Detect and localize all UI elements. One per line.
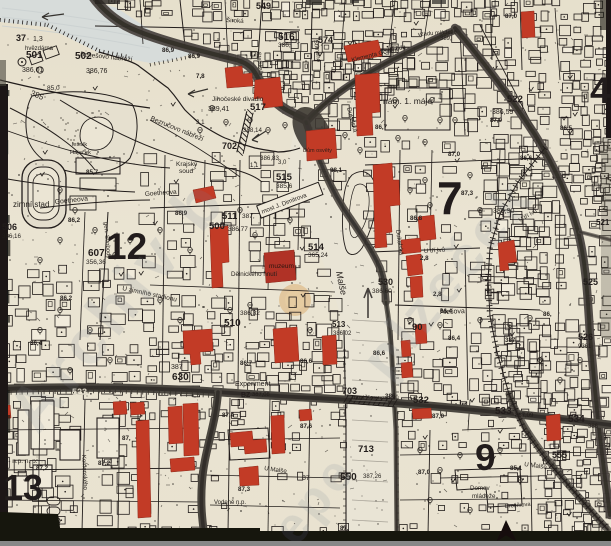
- svg-text:389,: 389,: [440, 36, 452, 42]
- svg-text:530: 530: [378, 277, 393, 287]
- svg-text:86,4: 86,4: [448, 335, 461, 342]
- svg-text:387: 387: [505, 337, 516, 344]
- svg-text:87,0: 87,0: [418, 469, 431, 476]
- svg-text:lesník: lesník: [72, 142, 87, 148]
- svg-text:387,08: 387,08: [252, 392, 270, 398]
- svg-text:87,0: 87,0: [490, 117, 503, 124]
- svg-text:Vodeně n.p.: Vodeně n.p.: [214, 500, 246, 506]
- svg-text:702: 702: [222, 141, 237, 151]
- svg-text:86,5: 86,5: [560, 125, 573, 132]
- svg-text:Domov: Domov: [470, 485, 491, 492]
- svg-text:517: 517: [250, 102, 266, 113]
- svg-text:386,02: 386,02: [333, 331, 352, 337]
- svg-text:630: 630: [172, 372, 189, 383]
- svg-text:713: 713: [358, 444, 374, 455]
- svg-text:574: 574: [318, 35, 333, 45]
- svg-text:522: 522: [507, 94, 523, 105]
- svg-text:515: 515: [276, 172, 293, 183]
- svg-text:1,1: 1,1: [250, 163, 259, 169]
- svg-text:386,01: 386,01: [22, 67, 44, 74]
- svg-text:86,2: 86,2: [60, 295, 73, 302]
- svg-text:387: 387: [171, 364, 183, 371]
- svg-text:386: 386: [588, 424, 599, 430]
- svg-text:87,0: 87,0: [448, 151, 461, 158]
- svg-text:87,0: 87,0: [505, 13, 518, 20]
- svg-text:7,8: 7,8: [196, 73, 205, 80]
- svg-text:521: 521: [596, 218, 610, 227]
- svg-text:85,7: 85,7: [86, 169, 99, 176]
- svg-text:365,24: 365,24: [308, 252, 328, 259]
- svg-text:389,41: 389,41: [208, 106, 230, 113]
- svg-text:549: 549: [256, 1, 271, 11]
- svg-text:506: 506: [2, 222, 17, 232]
- svg-text:386,: 386,: [278, 42, 291, 49]
- svg-text:Experiment: Experiment: [235, 381, 270, 388]
- svg-text:86,7: 86,7: [375, 124, 388, 131]
- svg-text:Dělnického hnutí: Dělnického hnutí: [231, 271, 277, 278]
- svg-text:386,76: 386,76: [86, 68, 108, 75]
- svg-text:mládeže: mládeže: [472, 493, 496, 500]
- svg-text:Široká: Široká: [226, 17, 244, 25]
- svg-text:88,1: 88,1: [330, 167, 343, 174]
- svg-text:87,3: 87,3: [238, 486, 251, 493]
- svg-text:386,16: 386,16: [2, 233, 21, 240]
- svg-text:zimní stad: zimní stad: [13, 200, 49, 209]
- svg-text:386,59: 386,59: [492, 109, 514, 116]
- svg-text:9361: 9361: [578, 344, 592, 350]
- svg-text:510: 510: [224, 318, 241, 329]
- svg-text:most Kosmonautů: most Kosmonautů: [352, 394, 399, 401]
- svg-text:86,9: 86,9: [162, 47, 175, 54]
- svg-text:3,0: 3,0: [278, 160, 287, 166]
- svg-text:86,8: 86,8: [410, 215, 423, 222]
- svg-text:525: 525: [583, 277, 598, 287]
- svg-text:86,2: 86,2: [68, 217, 81, 224]
- svg-text:13: 13: [3, 467, 43, 508]
- svg-text:387,09: 387,09: [515, 413, 534, 419]
- svg-text:385,6: 385,6: [276, 183, 293, 190]
- svg-text:87,2: 87,2: [98, 460, 111, 467]
- svg-text:Dům osvěty: Dům osvěty: [303, 147, 332, 154]
- svg-text:387,: 387,: [242, 213, 255, 220]
- svg-text:9: 9: [475, 437, 496, 478]
- svg-text:3,1: 3,1: [196, 119, 205, 126]
- svg-text:86,6: 86,6: [300, 358, 313, 365]
- svg-text:1,3: 1,3: [33, 36, 43, 43]
- svg-text:85,0: 85,0: [47, 85, 60, 92]
- svg-text:513: 513: [332, 320, 346, 329]
- svg-text:BZ: BZ: [241, 392, 251, 399]
- svg-text:hvězdárna: hvězdárna: [25, 46, 54, 52]
- svg-text:532: 532: [413, 395, 429, 406]
- svg-text:87,2: 87,2: [36, 465, 49, 472]
- svg-text:nám. 1. máje: nám. 1. máje: [383, 96, 432, 106]
- svg-text:86,7: 86,7: [240, 360, 253, 367]
- svg-text:86,6: 86,6: [520, 155, 533, 162]
- svg-text:388,14: 388,14: [243, 127, 262, 134]
- svg-text:87,4: 87,4: [222, 412, 235, 419]
- svg-text:4: 4: [590, 70, 611, 111]
- svg-text:607: 607: [88, 248, 105, 259]
- svg-text:37: 37: [16, 33, 26, 43]
- svg-text:muzeum: muzeum: [269, 263, 294, 270]
- svg-text:386,83: 386,83: [260, 155, 279, 162]
- svg-text:85,1: 85,1: [510, 465, 523, 472]
- svg-text:534: 534: [568, 414, 585, 425]
- svg-text:555: 555: [552, 450, 567, 460]
- svg-text:526: 526: [578, 332, 593, 342]
- svg-text:i - n.p. n. p.: i - n.p. n. p.: [5, 458, 38, 465]
- svg-text:87,3: 87,3: [461, 190, 474, 197]
- svg-text:87,: 87,: [340, 525, 349, 532]
- svg-text:Háječek: Háječek: [70, 150, 91, 156]
- svg-text:86,: 86,: [543, 311, 552, 318]
- svg-text:Jihočeské divadlo: Jihočeské divadlo: [212, 96, 264, 103]
- svg-text:533: 533: [495, 406, 512, 417]
- svg-text:386,60: 386,60: [372, 288, 392, 295]
- svg-text:87,: 87,: [122, 435, 131, 442]
- svg-text:87,6: 87,6: [300, 423, 313, 430]
- svg-text:86,9: 86,9: [188, 53, 201, 60]
- svg-text:87,0: 87,0: [432, 413, 445, 420]
- svg-text:386,77: 386,77: [228, 226, 248, 233]
- svg-text:386,82: 386,82: [240, 310, 260, 317]
